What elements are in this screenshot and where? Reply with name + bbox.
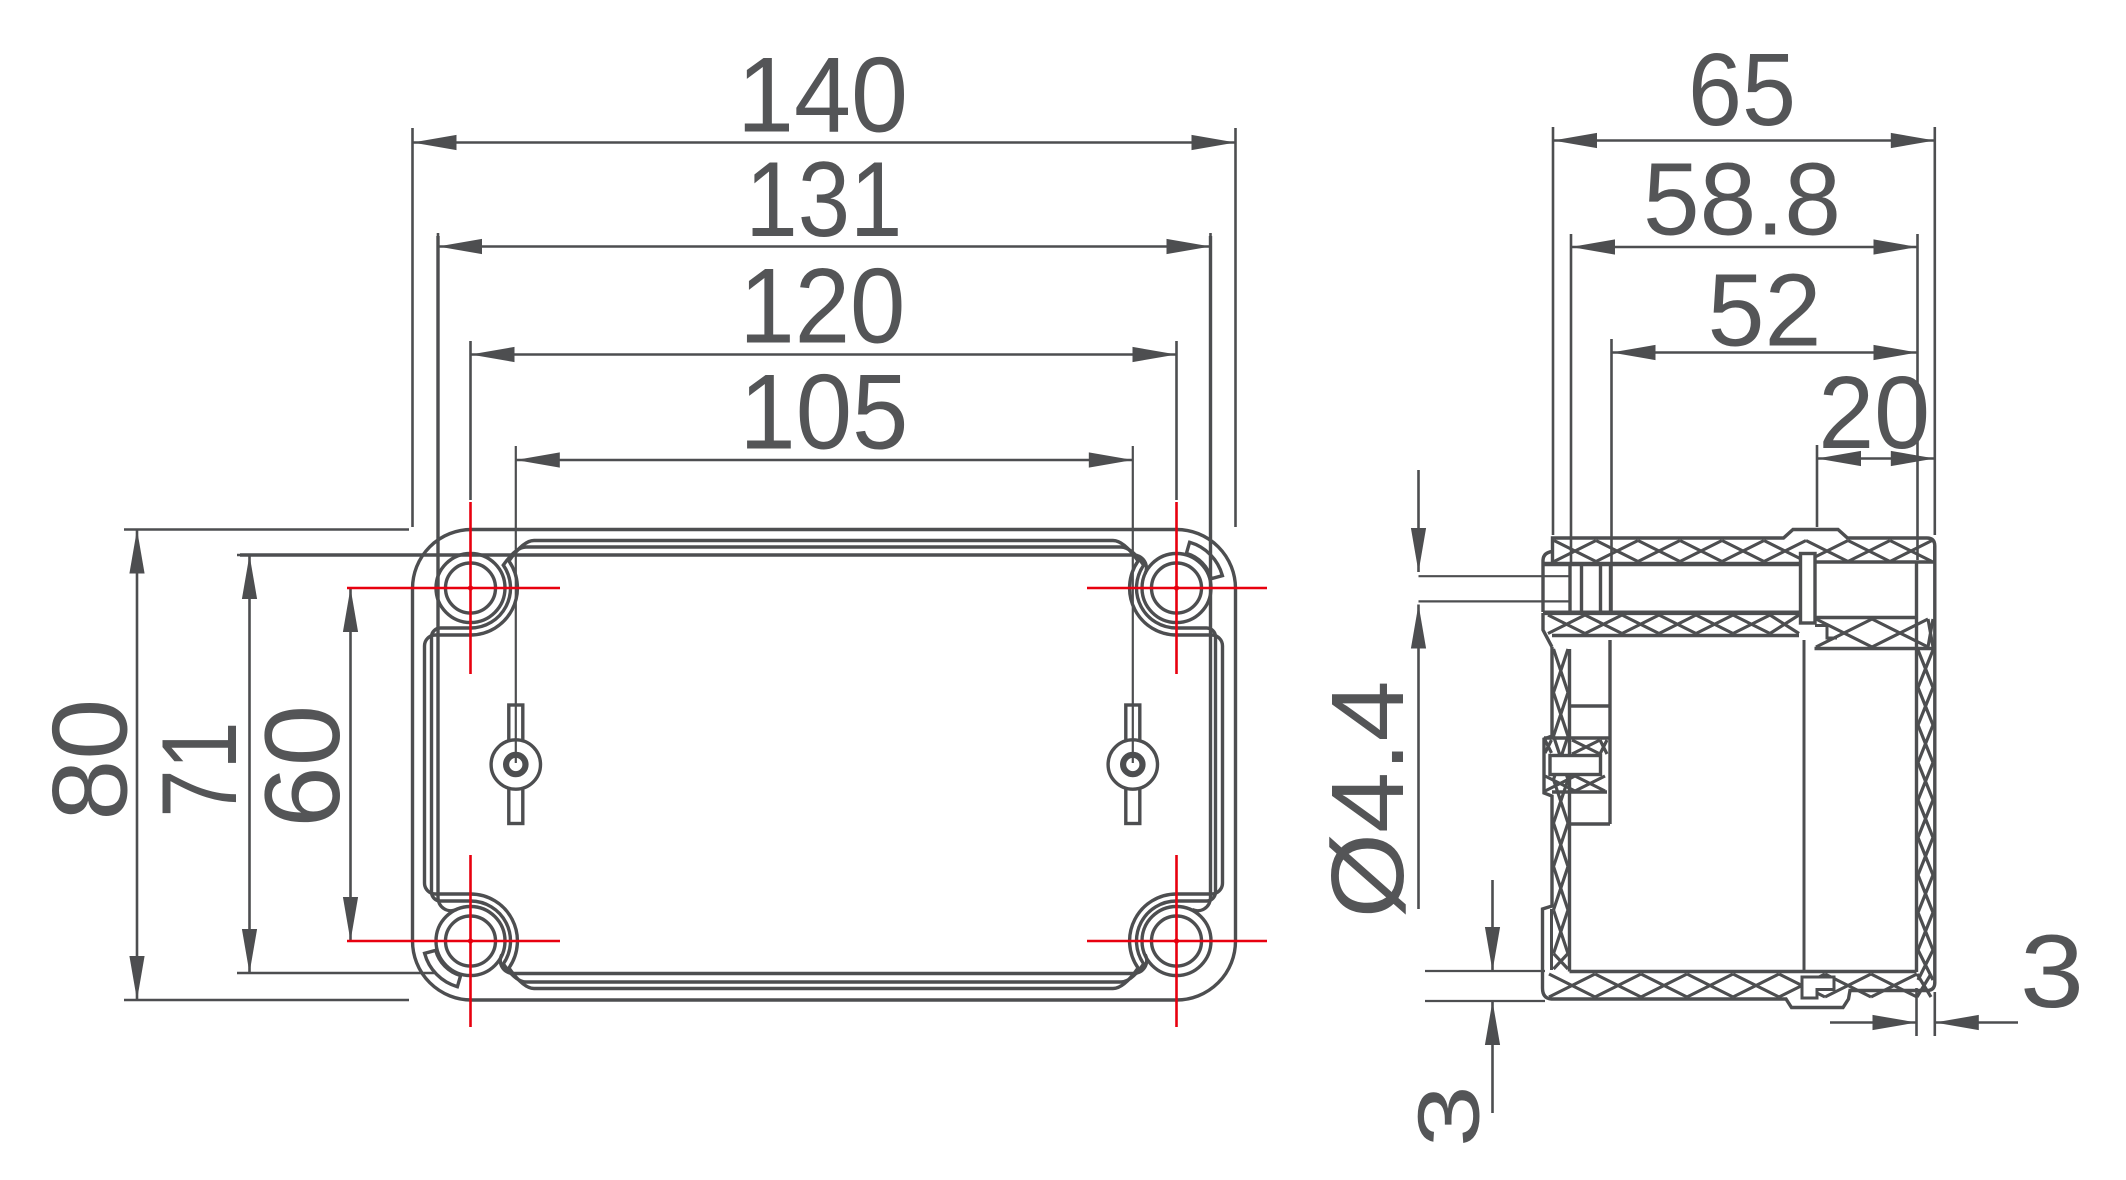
svg-text:Ø4.4: Ø4.4 xyxy=(1310,680,1425,918)
svg-text:105: 105 xyxy=(739,352,908,472)
svg-text:58.8: 58.8 xyxy=(1643,141,1841,256)
svg-text:20: 20 xyxy=(1818,355,1930,470)
svg-text:65: 65 xyxy=(1688,32,1796,147)
svg-text:52: 52 xyxy=(1708,252,1822,367)
svg-text:60: 60 xyxy=(242,705,362,828)
svg-text:131: 131 xyxy=(745,139,902,259)
svg-text:80: 80 xyxy=(30,699,150,821)
svg-text:3: 3 xyxy=(2020,914,2084,1030)
svg-text:140: 140 xyxy=(737,34,908,154)
svg-text:3: 3 xyxy=(1401,1085,1498,1147)
svg-text:120: 120 xyxy=(739,246,905,366)
